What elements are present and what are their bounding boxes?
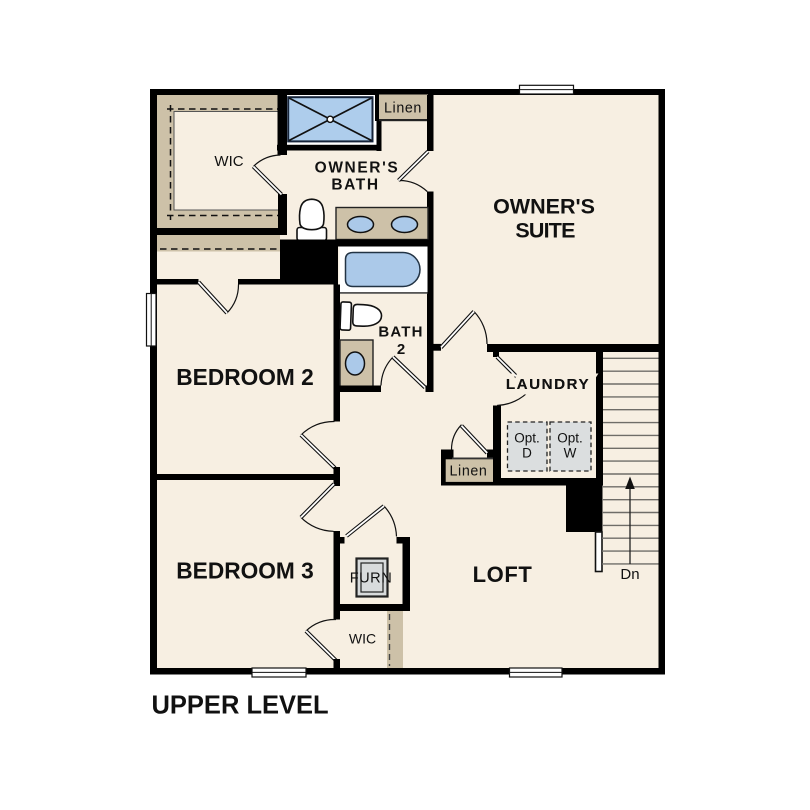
svg-text:SUITE: SUITE: [515, 218, 575, 242]
svg-text:D: D: [522, 446, 532, 461]
svg-text:Opt.: Opt.: [557, 431, 583, 446]
svg-text:WIC: WIC: [349, 631, 376, 647]
svg-text:Dn: Dn: [620, 566, 639, 583]
svg-text:BATH: BATH: [378, 324, 423, 341]
svg-text:UPPER LEVEL: UPPER LEVEL: [152, 692, 329, 720]
svg-text:Linen: Linen: [450, 463, 488, 479]
svg-text:BATH: BATH: [331, 176, 379, 193]
svg-text:OWNER'S: OWNER'S: [315, 160, 400, 177]
svg-text:2: 2: [397, 341, 405, 358]
svg-text:WIC: WIC: [214, 153, 243, 170]
svg-text:OWNER'S: OWNER'S: [493, 194, 595, 218]
svg-text:LOFT: LOFT: [473, 562, 533, 587]
svg-text:LAUNDRY: LAUNDRY: [506, 376, 590, 393]
svg-text:FURN: FURN: [350, 571, 393, 587]
svg-text:BEDROOM 2: BEDROOM 2: [176, 364, 313, 390]
svg-text:Linen: Linen: [384, 100, 422, 116]
svg-text:BEDROOM 3: BEDROOM 3: [176, 558, 313, 584]
svg-text:Opt.: Opt.: [514, 431, 540, 446]
svg-text:W: W: [564, 446, 577, 461]
